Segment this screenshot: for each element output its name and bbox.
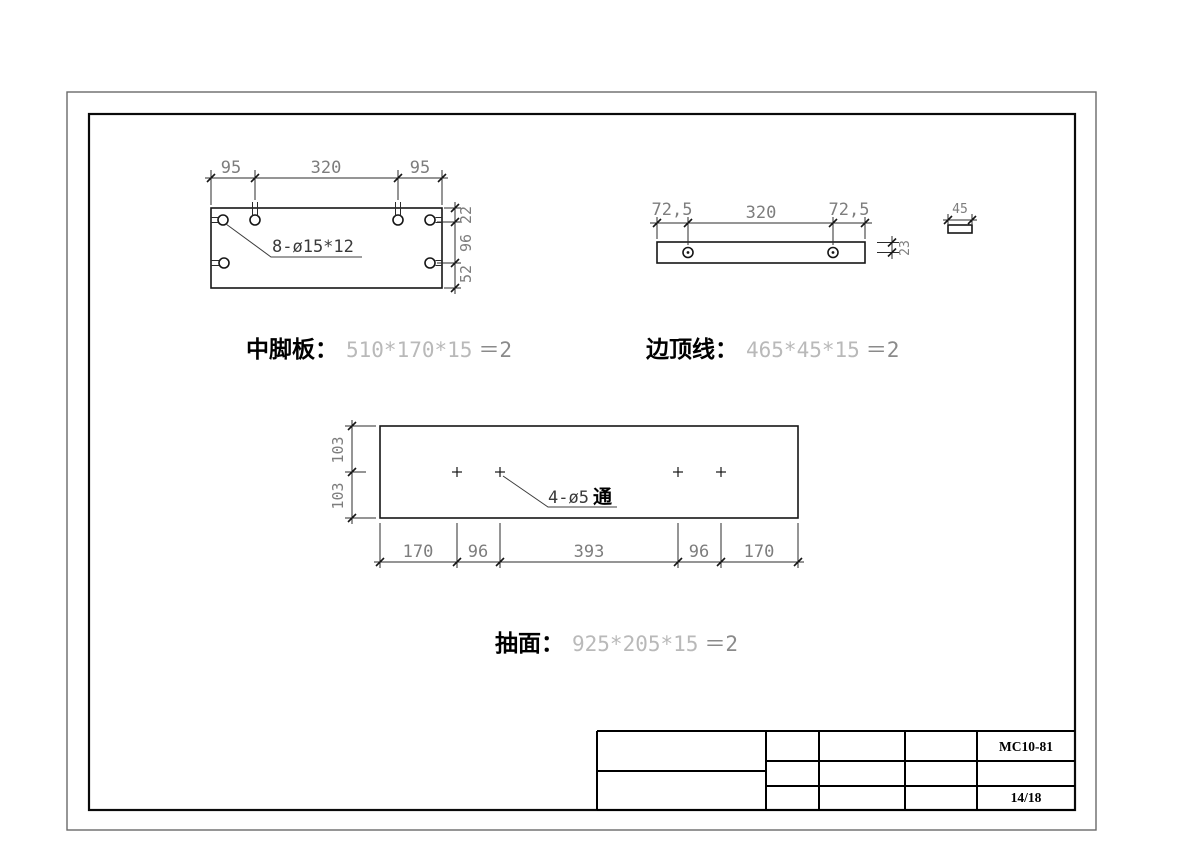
hole (250, 215, 260, 225)
part-edge-top-strip-drawing: 72,5 320 72,5 23 45 边顶线： 465*45*15 (646, 200, 977, 362)
hole (425, 215, 435, 225)
dim-label: 103 (329, 482, 347, 509)
dim-label: 96 (457, 234, 475, 252)
hole-note: 4-ø5 通 (548, 486, 613, 508)
outer-border (67, 92, 1096, 830)
part-name-label: 边顶线： (646, 336, 738, 362)
part-name-label: 抽面： (495, 630, 564, 656)
dim-label: 22 (457, 206, 475, 224)
part-size-label: 925*205*15 (572, 632, 698, 656)
dimension-top: 72,5 320 72,5 (650, 200, 872, 245)
dim-label: 45 (952, 202, 968, 217)
dimension-left: 103 103 (329, 420, 376, 524)
dim-label: 170 (403, 542, 434, 562)
part-size-label: 510*170*15 (346, 338, 472, 362)
dim-label: 320 (311, 158, 342, 178)
dim-label: 96 (689, 542, 709, 562)
part-qty-label: ＝2 (866, 338, 900, 362)
dim-label: 23 (898, 240, 913, 256)
strip-end-outline (948, 225, 972, 233)
inner-border (89, 114, 1075, 810)
dim-label: 320 (746, 203, 777, 223)
dim-label: 72,5 (652, 200, 693, 220)
hole-center-dot (687, 251, 690, 254)
part-size-label: 465*45*15 (746, 338, 860, 362)
hole-center-dot (832, 251, 835, 254)
dim-label: 95 (410, 158, 430, 178)
dim-label: 170 (744, 542, 775, 562)
part-caption: 中脚板： 510*170*15 ＝2 (246, 336, 512, 362)
dimension-thickness: 23 (877, 236, 913, 259)
dim-label: 72,5 (829, 200, 870, 220)
hole-note-prefix: 4-ø5 (548, 488, 589, 508)
part-midfoot-plate-drawing: 95 320 95 22 96 52 8-ø15*12 中脚板： 510*170… (205, 158, 512, 362)
hole-cross-marks (452, 467, 726, 477)
dim-label: 95 (221, 158, 241, 178)
sheet-number: 14/18 (1011, 790, 1042, 805)
hole-note: 8-ø15*12 (272, 237, 354, 257)
hole (218, 215, 228, 225)
dimension-bottom: 170 96 393 96 170 (374, 523, 804, 568)
hole (219, 258, 229, 268)
part-caption: 抽面： 925*205*15 ＝2 (495, 630, 738, 656)
drawing-number: MC10-81 (999, 739, 1053, 754)
dimension-top: 95 320 95 (205, 158, 448, 205)
dim-label: 103 (329, 436, 347, 463)
title-block: MC10-81 14/18 (597, 731, 1075, 810)
cad-sheet-page: 95 320 95 22 96 52 8-ø15*12 中脚板： 510*170… (0, 0, 1191, 842)
cad-drawing-canvas: 95 320 95 22 96 52 8-ø15*12 中脚板： 510*170… (0, 0, 1191, 842)
hole (393, 215, 403, 225)
dim-label: 52 (457, 265, 475, 283)
part-qty-label: ＝2 (704, 632, 738, 656)
part-qty-label: ＝2 (478, 338, 512, 362)
part-caption: 边顶线： 465*45*15 ＝2 (646, 336, 899, 362)
hole (425, 258, 435, 268)
hole-note-suffix: 通 (593, 486, 613, 508)
part-drawer-face-drawing: 4-ø5 通 103 103 (329, 420, 804, 656)
dim-label: 96 (468, 542, 488, 562)
strip-end-view: 45 (943, 202, 977, 233)
part-name-label: 中脚板： (246, 336, 338, 362)
dim-label: 393 (574, 542, 605, 562)
